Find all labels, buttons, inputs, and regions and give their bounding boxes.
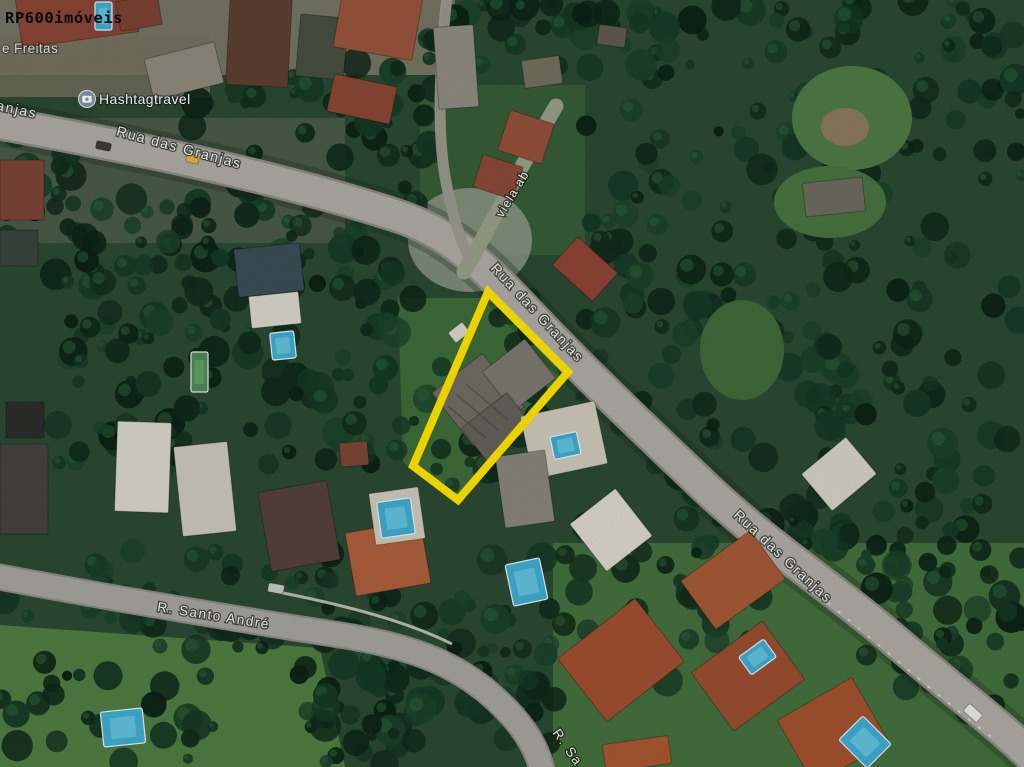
image-grain-overlay: [0, 0, 1024, 767]
satellite-map-image[interactable]: anjas Rua das Granjas Rua das Granjas Ru…: [0, 0, 1024, 767]
map-canvas: anjas Rua das Granjas Rua das Granjas Ru…: [0, 0, 1024, 767]
